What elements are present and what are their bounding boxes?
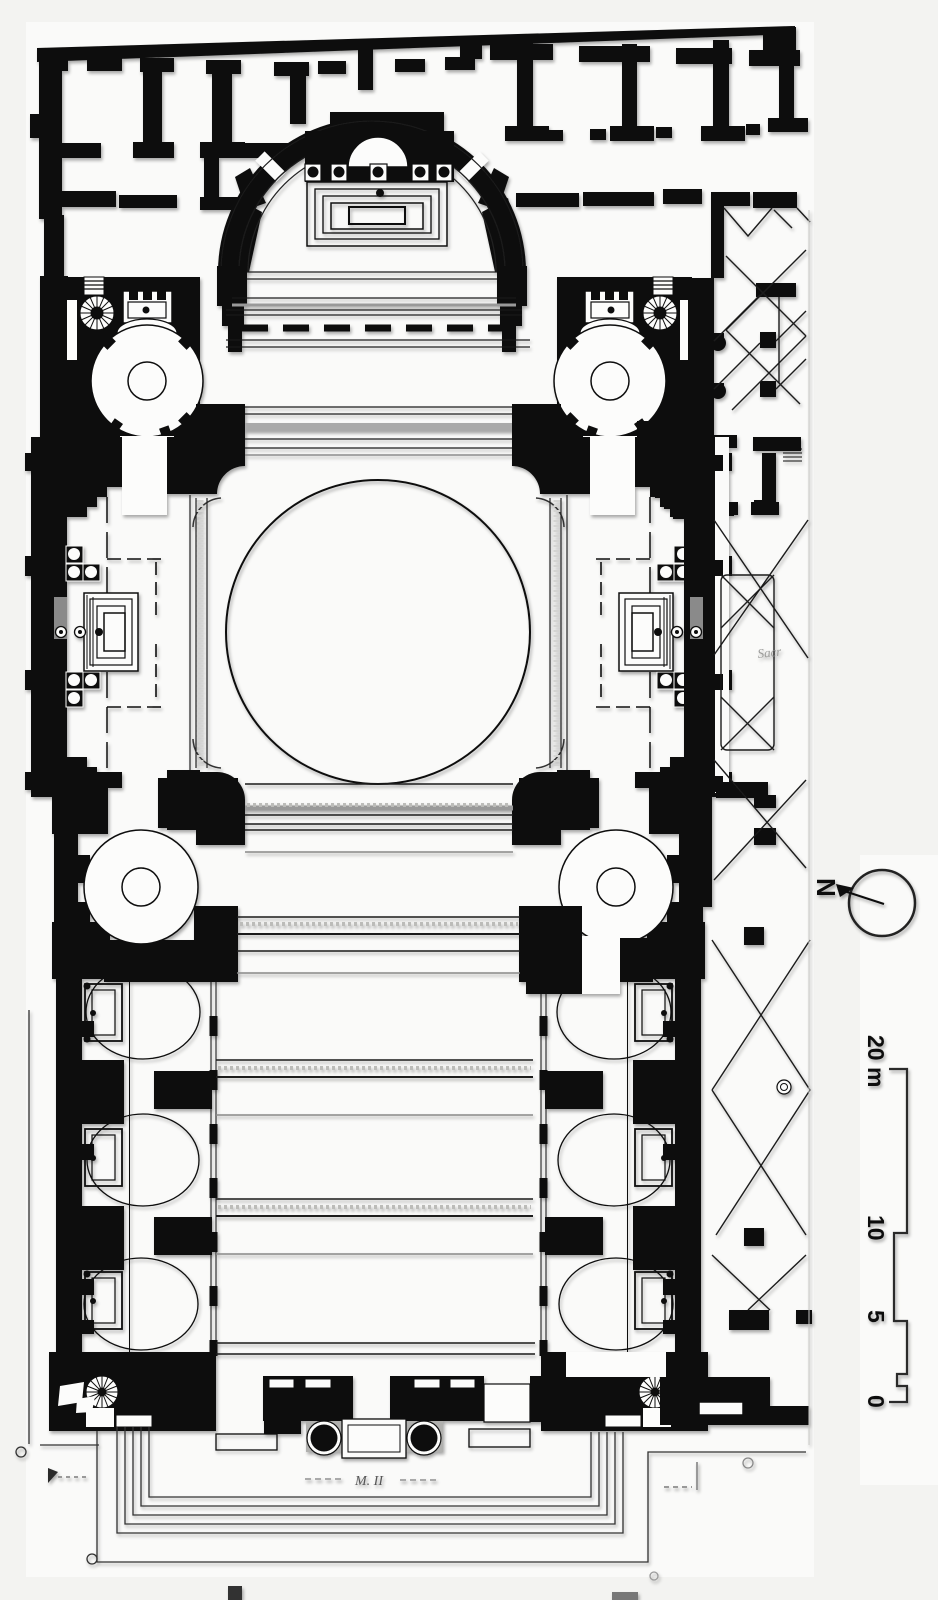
svg-text:10: 10 [863,1215,889,1241]
svg-text:Sacr: Sacr [757,643,783,661]
svg-text:M. II: M. II [354,1474,384,1489]
svg-text:20 m: 20 m [863,1035,889,1087]
svg-text:5: 5 [863,1310,889,1323]
svg-text:0: 0 [863,1395,889,1408]
svg-text:N: N [811,878,841,897]
